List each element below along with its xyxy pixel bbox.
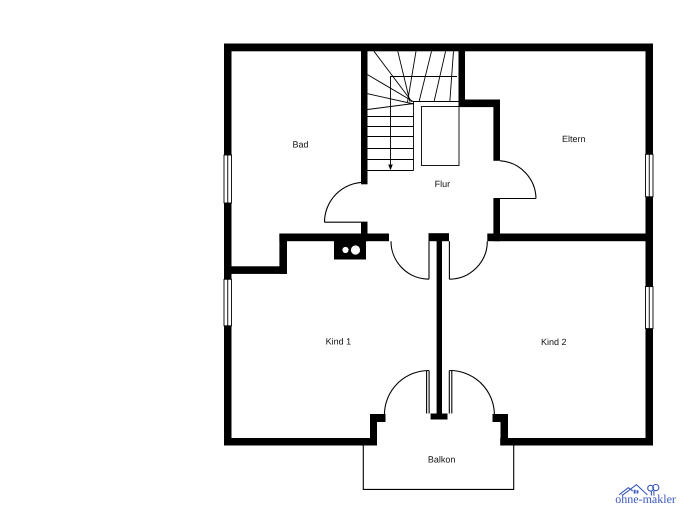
- svg-text:Flur: Flur: [435, 179, 451, 189]
- svg-text:Eltern: Eltern: [562, 134, 586, 144]
- svg-text:Kind 1: Kind 1: [326, 337, 352, 347]
- svg-text:Bad: Bad: [292, 139, 308, 149]
- svg-text:ohne-makler: ohne-makler: [615, 492, 676, 506]
- svg-text:Balkon: Balkon: [428, 455, 456, 465]
- svg-text:Kind 2: Kind 2: [541, 337, 567, 347]
